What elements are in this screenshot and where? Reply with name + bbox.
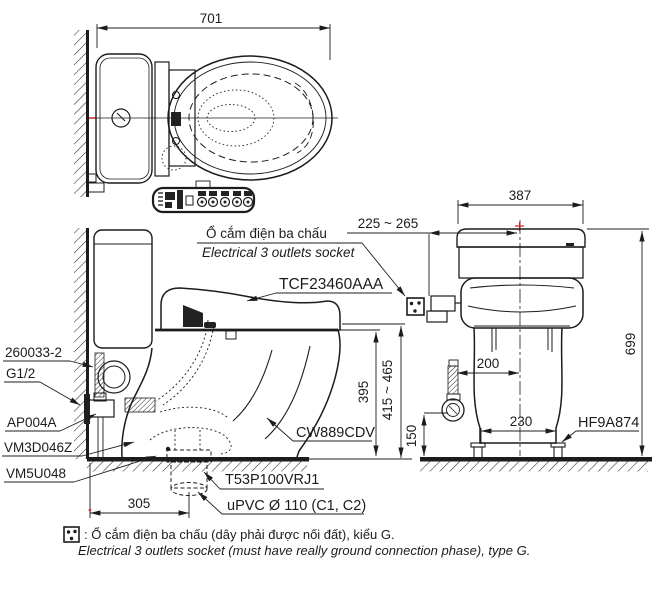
dim-200-label: 200 xyxy=(477,356,500,371)
socket-label-vi: Ổ cắm điện ba chấu xyxy=(206,226,327,241)
floor-bolts xyxy=(471,443,565,458)
dim-seat-height-label: 415 ~ 465 xyxy=(380,360,395,420)
dim-230-label: 230 xyxy=(510,414,533,429)
washlet-model-text: TCF23460AAA xyxy=(279,276,384,293)
label-drain-socket: T53P100VRJ1 xyxy=(204,472,324,489)
footnote-en: Electrical 3 outlets socket (must have r… xyxy=(78,543,530,558)
dim-305-label: 305 xyxy=(128,496,151,511)
side-floor-hatch xyxy=(87,462,307,472)
socket-icon xyxy=(407,298,424,315)
dim-socket-range-label: 225 ~ 265 xyxy=(358,216,418,231)
technical-drawing: 701 xyxy=(0,0,669,611)
connector-text: VM3D046Z xyxy=(4,440,72,455)
socket-note-icon xyxy=(64,527,79,542)
footnote-vi: : Ổ cắm điện ba chấu (dây phải được nối … xyxy=(84,527,395,542)
remote-control xyxy=(153,181,254,212)
socket-label-en: Electrical 3 outlets socket xyxy=(202,245,356,260)
bolt-cap-text: HF9A874 xyxy=(578,415,639,431)
front-floor-bar xyxy=(420,457,652,462)
label-bowl-model: CW889CDV xyxy=(267,418,375,441)
label-washlet-model: TCF23460AAA xyxy=(247,276,392,301)
label-drain-pipe: uPVC Ø 110 (C1, C2) xyxy=(198,492,366,514)
side-wall-hatch xyxy=(74,228,87,459)
front-view: 387 699 225 ~ 265 200 230 150 xyxy=(347,188,652,472)
remote-buttons xyxy=(198,191,253,207)
label-thread-size: G1/2 xyxy=(4,366,80,405)
dim-230 xyxy=(481,428,556,444)
tank-side xyxy=(94,230,152,348)
dim-150-label: 150 xyxy=(404,425,419,448)
thread-size-text: G1/2 xyxy=(6,366,35,381)
footnote: : Ổ cắm điện ba chấu (dây phải được nối … xyxy=(64,527,530,558)
top-wall-hatch xyxy=(74,30,87,197)
side-floor-bar xyxy=(87,457,309,462)
label-bolt-cap: HF9A874 xyxy=(562,415,639,442)
tank-front-body xyxy=(459,247,583,278)
drain-socket-text: T53P100VRJ1 xyxy=(225,472,319,488)
flange-seal-text: VM5U048 xyxy=(6,466,66,481)
bowl-model-text: CW889CDV xyxy=(296,425,375,441)
power-plug xyxy=(427,296,461,322)
drain-pipe-text: uPVC Ø 110 (C1, C2) xyxy=(227,498,366,514)
dim-701-label: 701 xyxy=(200,11,223,26)
label-connector: VM3D046Z xyxy=(2,440,134,456)
tank-front-lid xyxy=(457,229,585,247)
tank-top xyxy=(96,54,152,183)
dim-395-label: 395 xyxy=(356,381,371,404)
dim-387 xyxy=(458,200,583,224)
dim-150 xyxy=(424,413,448,456)
stop-valve-text: AP004A xyxy=(7,415,57,430)
supply-valve xyxy=(442,360,464,421)
front-floor-hatch xyxy=(420,462,648,472)
dim-699-label: 699 xyxy=(623,333,638,356)
dim-387-label: 387 xyxy=(509,188,532,203)
spec-sheet: 701 xyxy=(0,0,669,611)
supply-hose-text: 260033-2 xyxy=(5,345,62,360)
top-view: 701 xyxy=(74,11,338,212)
